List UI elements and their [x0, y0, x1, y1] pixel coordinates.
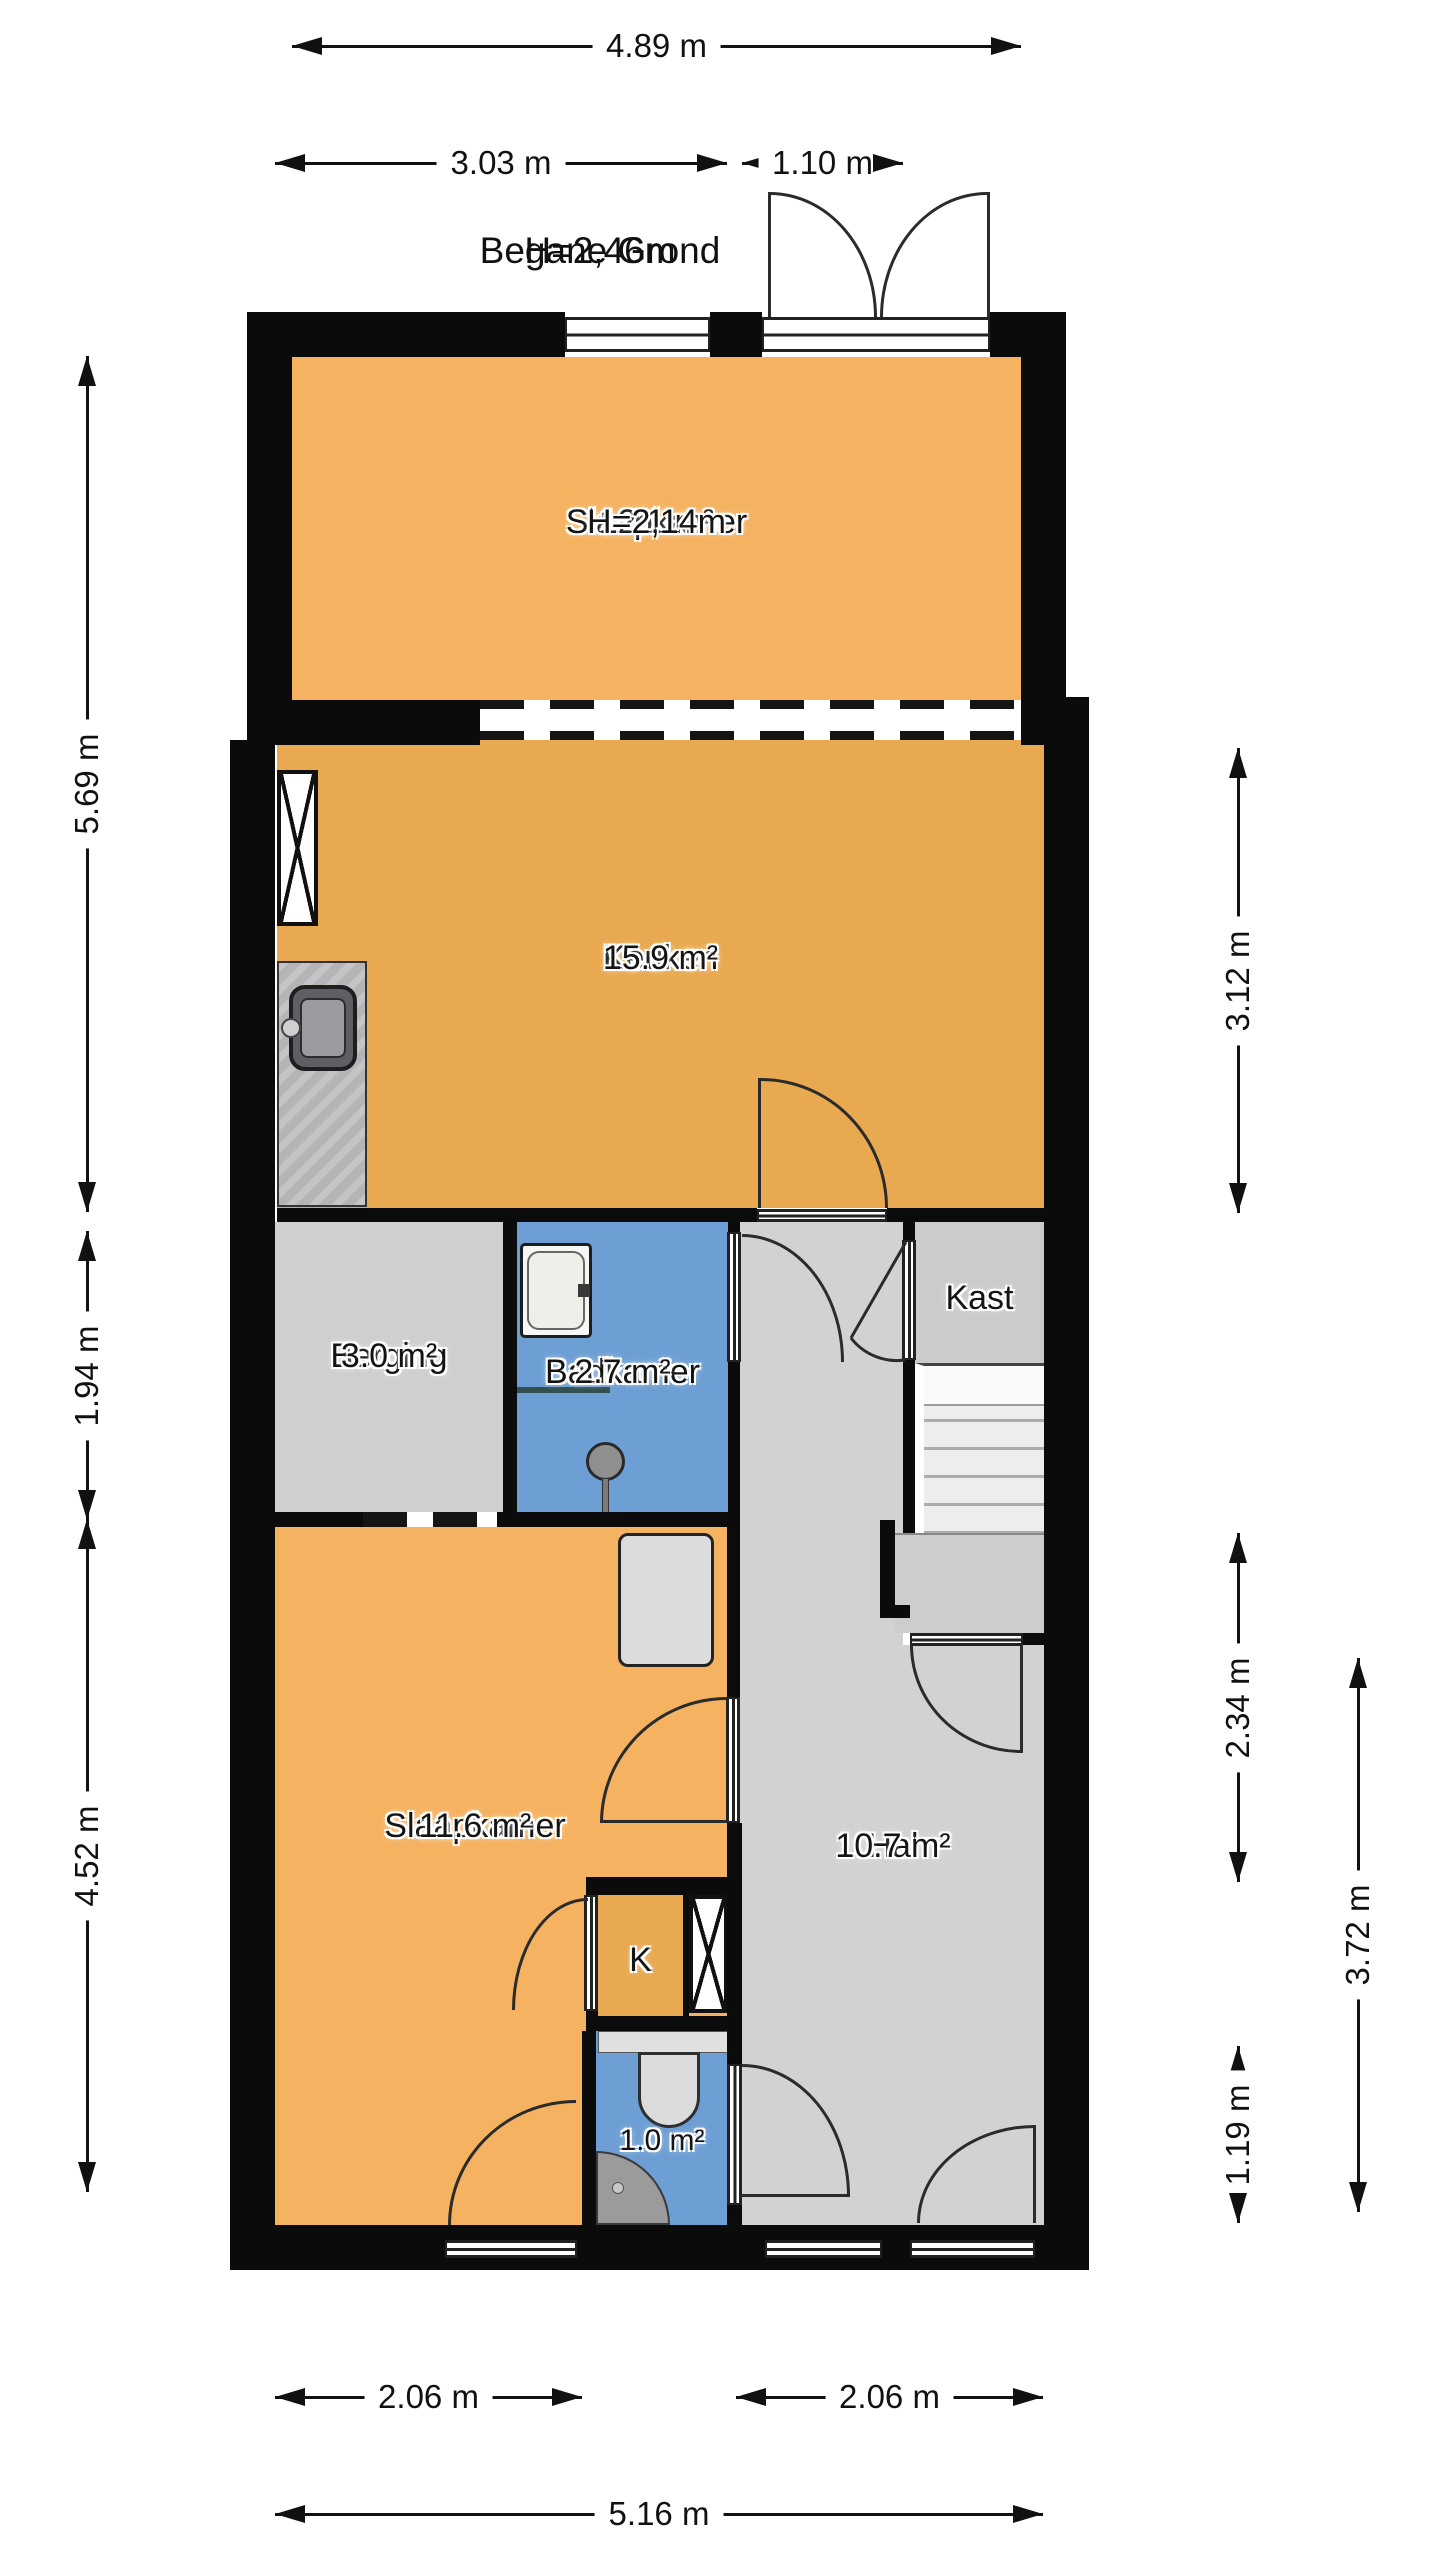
- wall: [503, 1222, 517, 1512]
- door-frame-badkamer: [727, 1232, 741, 1362]
- front-door-frame: [910, 2240, 1035, 2258]
- wall: [247, 312, 565, 357]
- bathtub-inner: [527, 1251, 585, 1330]
- plan-title-height: H=2,46m: [524, 230, 675, 272]
- dimension-bottom-left: 2.06 m: [275, 2379, 582, 2415]
- wall: [728, 1222, 740, 1232]
- dimension-left-lower: 4.52 m: [69, 1519, 105, 2192]
- room-area: 1.0 m²: [619, 2118, 704, 2163]
- wall: [230, 740, 275, 2270]
- wall: [1023, 1633, 1044, 1645]
- dim-label: 2.34 m: [1219, 1643, 1257, 1772]
- dim-label: 1.94 m: [68, 1311, 106, 1440]
- dim-label: 1.10 m: [758, 144, 887, 182]
- dim-label: 3.12 m: [1219, 916, 1257, 1045]
- dim-label: 5.16 m: [595, 2495, 724, 2533]
- wall: [277, 1208, 757, 1222]
- dim-label: 3.72 m: [1339, 1871, 1377, 2000]
- entry-door-right-panel: [987, 192, 990, 317]
- boiler: [618, 1533, 714, 1667]
- garden-door-bedroom: [445, 2240, 577, 2258]
- room-name: K: [629, 1938, 652, 1983]
- open-connection-bedroom: [480, 700, 1021, 740]
- wall: [247, 700, 480, 745]
- dimension-top-left: 3.03 m: [275, 145, 727, 181]
- stair-landing: [895, 1533, 1044, 1633]
- door-frame-keuken: [757, 1209, 887, 1222]
- wall: [880, 1605, 910, 1618]
- room-area: 3.0 m²: [341, 1334, 437, 1379]
- dimension-left-upper: 5.69 m: [69, 356, 105, 1212]
- room-area: 15.9 m²: [603, 936, 718, 981]
- dimension-bottom-right: 2.06 m: [736, 2379, 1043, 2415]
- dimension-right-upper: 3.12 m: [1220, 748, 1256, 1213]
- kitchen-sink-basin: [300, 998, 346, 1058]
- toilet-bowl: [638, 2052, 700, 2128]
- dim-label: 5.69 m: [68, 720, 106, 849]
- kitchen-faucet-icon: [281, 1018, 301, 1038]
- wall: [497, 1512, 517, 1527]
- wall: [727, 1527, 740, 1697]
- washbasin: [586, 1442, 625, 1481]
- room-area: 10.7 m²: [835, 1824, 950, 1869]
- door-frame-toilet: [727, 2064, 742, 2205]
- room-area: 11.6 m²: [419, 1804, 532, 1849]
- wall: [880, 1520, 895, 1618]
- wall: [586, 2016, 742, 2031]
- window-hal-bottom: [765, 2240, 882, 2258]
- dimension-left-middle: 1.94 m: [69, 1231, 105, 1520]
- dim-label: 4.89 m: [592, 27, 721, 65]
- shaft-hal: [689, 1895, 728, 2013]
- dim-label: 1.19 m: [1219, 2070, 1257, 2199]
- wall: [586, 1877, 742, 1895]
- dim-label: 2.06 m: [825, 2378, 954, 2416]
- bathtub-tap-icon: [578, 1284, 590, 1297]
- wall: [582, 2031, 596, 2225]
- room-area: 2.7 m²: [574, 1350, 670, 1395]
- toilet-cistern: [598, 2031, 728, 2053]
- wall: [727, 2205, 742, 2225]
- wall: [1021, 312, 1066, 745]
- door-frame-slaapkamer: [726, 1697, 740, 1823]
- wall: [247, 312, 292, 745]
- entry-door-left-swing: [770, 192, 877, 317]
- entry-door-right-swing: [880, 192, 987, 317]
- dimension-right-outer: 3.72 m: [1340, 1658, 1376, 2212]
- wall: [275, 1512, 363, 1527]
- stair-top-tread: [924, 1366, 1044, 1406]
- window-top-bedroom: [565, 317, 710, 352]
- dimension-right-lower: 1.19 m: [1220, 2046, 1256, 2223]
- wall: [887, 1208, 1044, 1222]
- wall: [710, 312, 762, 357]
- wall: [903, 1360, 915, 1533]
- kast-door-swing: [845, 1238, 915, 1366]
- floorplan: Begane Grond H=2,46m Slaapkamer 12.1 m² …: [0, 0, 1440, 2560]
- room-height: H=2,14m: [587, 500, 726, 545]
- wall: [683, 1890, 689, 2016]
- dimension-bottom-total: 5.16 m: [275, 2496, 1043, 2532]
- wall: [1044, 740, 1089, 2270]
- dimension-right-middle: 2.34 m: [1220, 1533, 1256, 1882]
- dim-label: 2.06 m: [364, 2378, 493, 2416]
- dimension-top-total: 4.89 m: [292, 28, 1021, 64]
- dimension-top-right: 1.10 m: [742, 145, 903, 181]
- dim-label: 4.52 m: [68, 1791, 106, 1920]
- corner-shower-sprayer-icon: [612, 2182, 624, 2194]
- entry-door-sill: [762, 317, 990, 352]
- staircase: [915, 1363, 1044, 1533]
- room-name: Kast: [945, 1276, 1013, 1321]
- shaft-keuken: [277, 770, 318, 926]
- dim-label: 3.03 m: [437, 144, 566, 182]
- wall: [1021, 697, 1089, 745]
- open-connection-berging: [363, 1512, 497, 1527]
- washbasin-pedestal: [602, 1478, 609, 1514]
- wall: [517, 1512, 740, 1527]
- wall: [728, 1362, 740, 1512]
